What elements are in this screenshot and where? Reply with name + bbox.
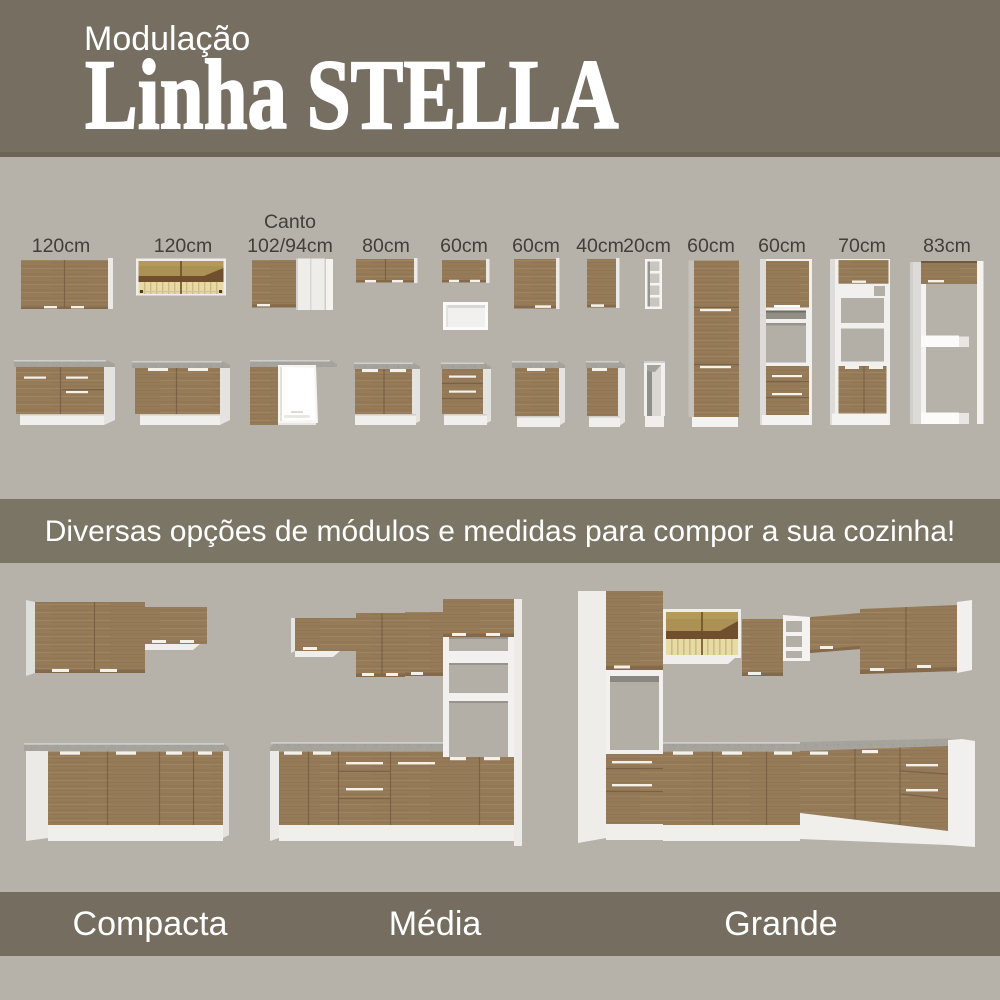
svg-text:120cm: 120cm (154, 235, 213, 257)
svg-text:Canto: Canto (264, 211, 316, 233)
svg-text:83cm: 83cm (923, 235, 971, 257)
svg-text:Linha STELLA: Linha STELLA (85, 40, 618, 150)
svg-text:60cm: 60cm (512, 235, 560, 257)
svg-text:60cm: 60cm (440, 235, 488, 257)
svg-text:Grande: Grande (724, 905, 837, 943)
svg-text:Diversas opções de módulos e m: Diversas opções de módulos e medidas par… (45, 515, 956, 548)
svg-text:Média: Média (389, 905, 482, 943)
svg-text:120cm: 120cm (32, 235, 91, 257)
svg-text:60cm: 60cm (687, 235, 735, 257)
svg-text:70cm: 70cm (838, 235, 886, 257)
svg-text:80cm: 80cm (362, 235, 410, 257)
svg-text:102/94cm: 102/94cm (247, 235, 333, 257)
svg-text:20cm: 20cm (623, 235, 671, 257)
svg-text:60cm: 60cm (758, 235, 806, 257)
svg-text:Compacta: Compacta (73, 905, 228, 943)
svg-text:40cm: 40cm (576, 235, 624, 257)
